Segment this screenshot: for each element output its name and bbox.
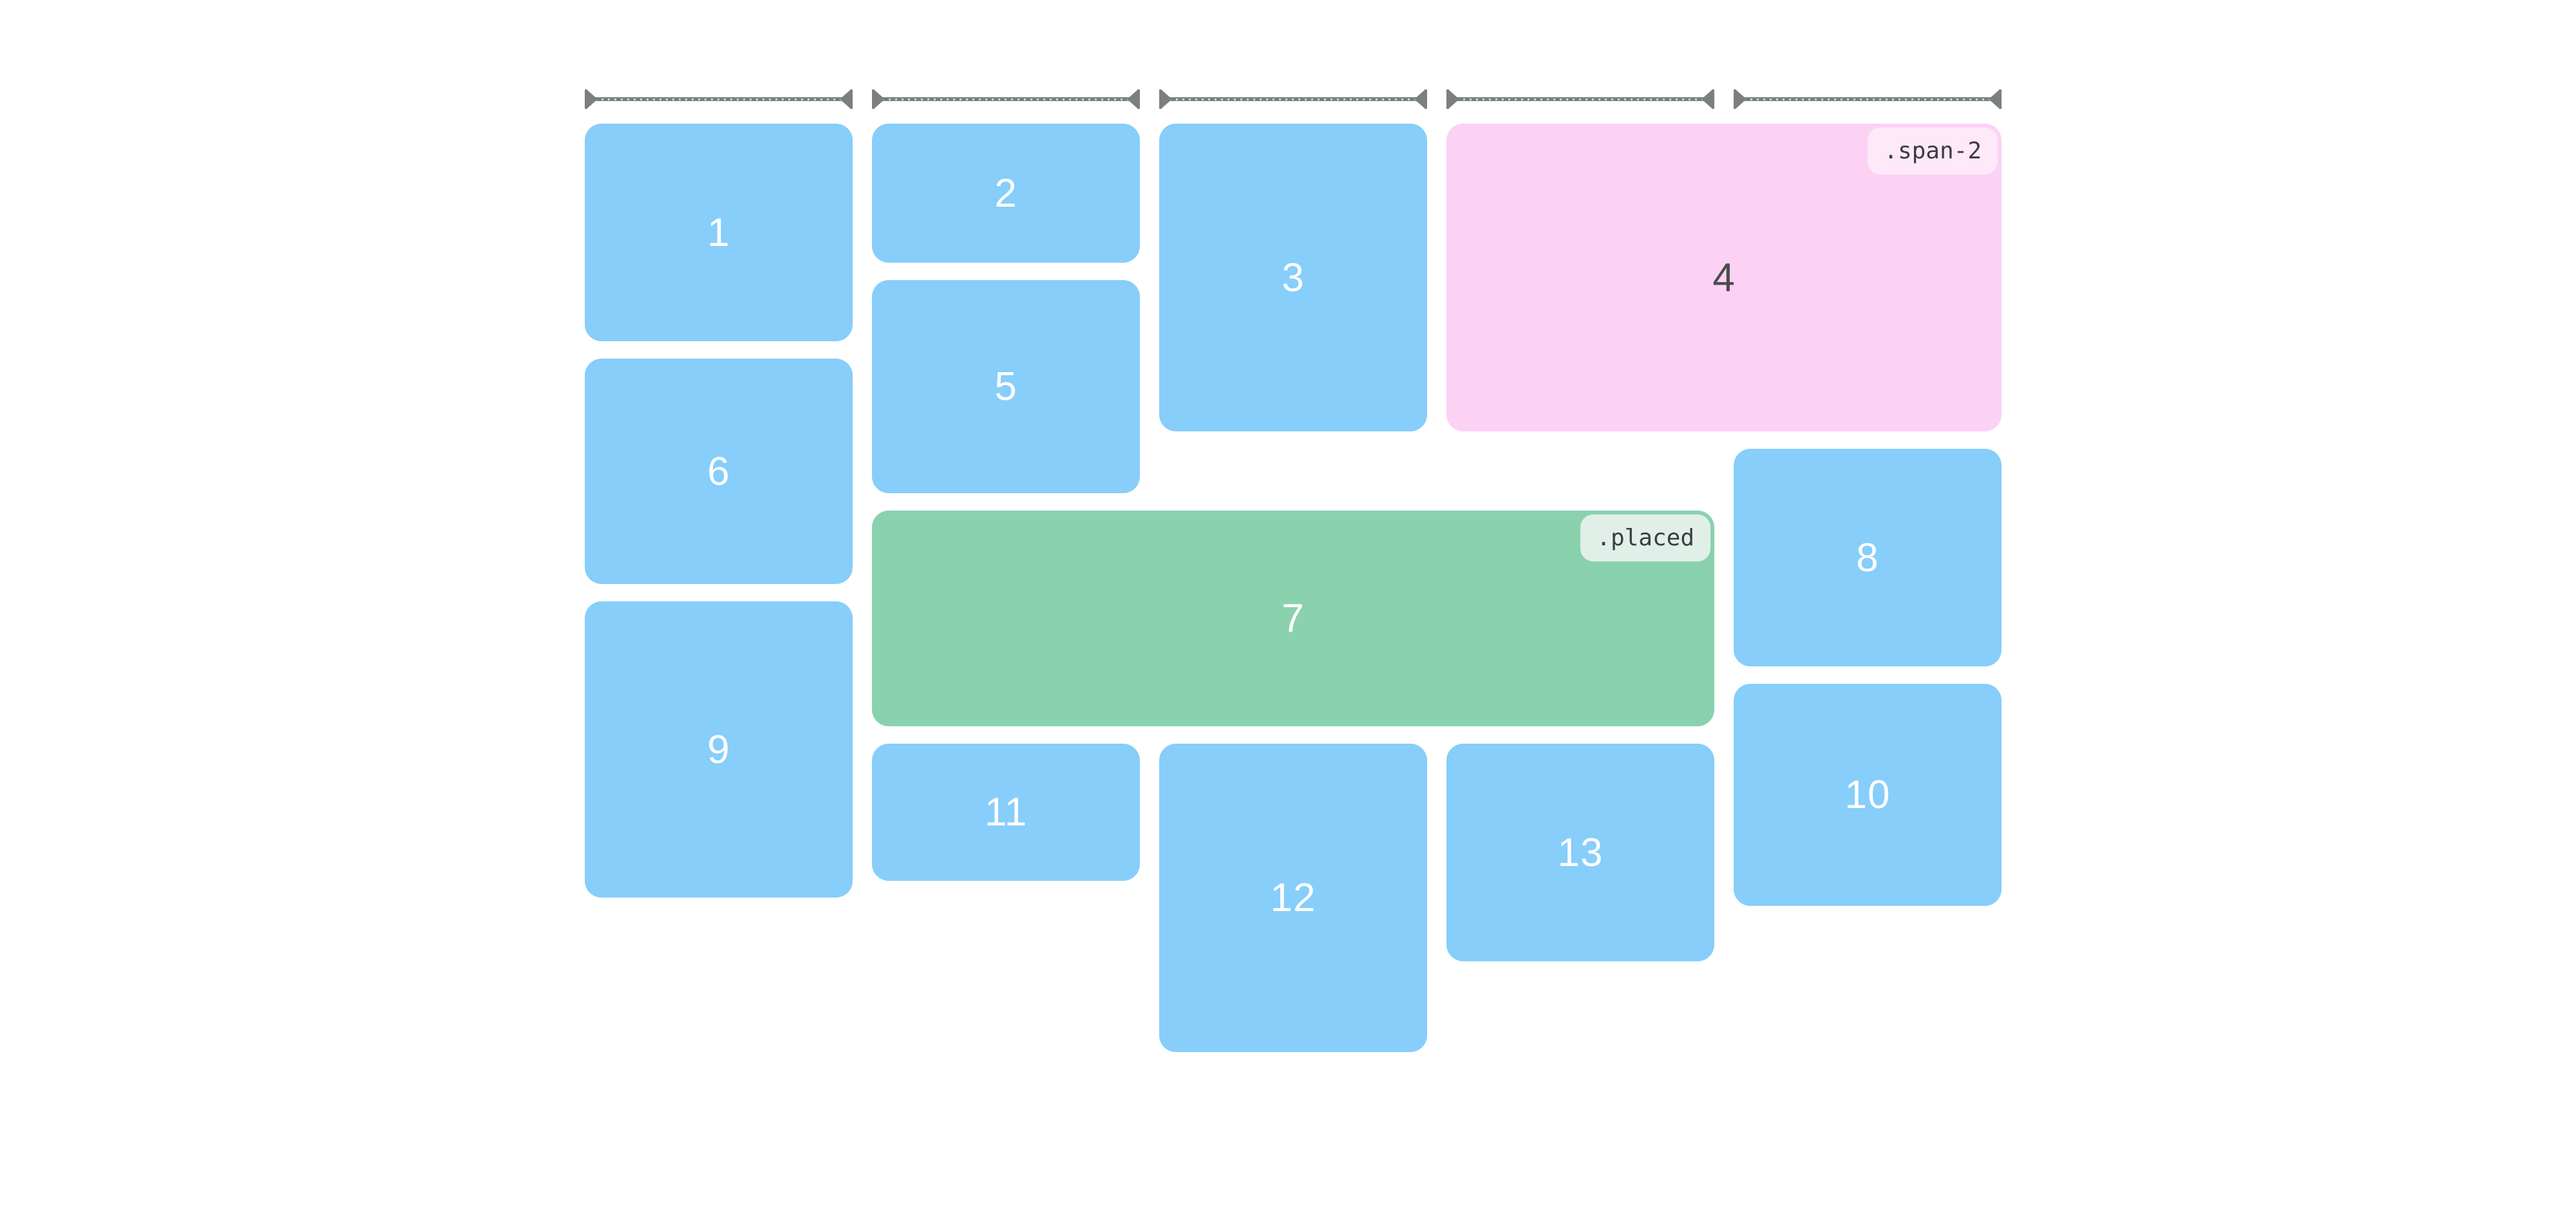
ruler-dotted-centerline bbox=[876, 99, 1136, 100]
grid-item-7: 7.placed bbox=[872, 511, 1714, 726]
grid-item-11: 11 bbox=[872, 744, 1140, 881]
ruler-dotted-centerline bbox=[1738, 99, 1998, 100]
grid-item-13: 13 bbox=[1446, 744, 1714, 961]
column-ruler-segment bbox=[1159, 89, 1427, 109]
grid-item-12: 12 bbox=[1159, 744, 1427, 1052]
column-ruler-segment bbox=[1446, 89, 1714, 109]
ruler-arrow-right-icon bbox=[1161, 89, 1172, 109]
item-number: 10 bbox=[1845, 772, 1891, 818]
grid-item-1: 1 bbox=[585, 124, 853, 341]
ruler-dotted-centerline bbox=[589, 99, 849, 100]
item-number: 2 bbox=[994, 171, 1017, 216]
item-number: 4 bbox=[1712, 255, 1735, 301]
item-number: 8 bbox=[1856, 535, 1879, 581]
item-number: 6 bbox=[707, 449, 730, 494]
item-class-badge: .span-2 bbox=[1868, 127, 1998, 174]
grid-item-8: 8 bbox=[1734, 449, 2002, 666]
ruler-dotted-centerline bbox=[1163, 99, 1423, 100]
masonry-grid-demo-canvas: 1234.span-2567.placed8910111213 bbox=[0, 0, 2576, 1224]
ruler-arrow-right-icon bbox=[587, 89, 598, 109]
ruler-arrow-left-icon bbox=[1701, 89, 1712, 109]
ruler-arrow-left-icon bbox=[840, 89, 851, 109]
column-ruler-segment bbox=[585, 89, 853, 109]
grid-item-2: 2 bbox=[872, 124, 1140, 263]
ruler-arrow-right-icon bbox=[874, 89, 885, 109]
ruler-arrow-left-icon bbox=[1989, 89, 2000, 109]
item-number: 11 bbox=[985, 789, 1027, 835]
grid-item-6: 6 bbox=[585, 359, 853, 584]
ruler-arrow-left-icon bbox=[1127, 89, 1138, 109]
column-ruler-segment bbox=[872, 89, 1140, 109]
item-number: 5 bbox=[994, 364, 1017, 410]
ruler-arrow-right-icon bbox=[1736, 89, 1747, 109]
item-number: 13 bbox=[1558, 830, 1604, 876]
item-class-badge: .placed bbox=[1580, 514, 1710, 561]
item-number: 1 bbox=[707, 210, 730, 256]
column-ruler-segment bbox=[1734, 89, 2002, 109]
ruler-arrow-right-icon bbox=[1448, 89, 1459, 109]
item-number: 12 bbox=[1271, 875, 1316, 921]
item-number: 9 bbox=[707, 727, 730, 773]
ruler-dotted-centerline bbox=[1450, 99, 1710, 100]
grid-item-5: 5 bbox=[872, 280, 1140, 493]
grid-item-4: 4.span-2 bbox=[1446, 124, 2002, 431]
item-number: 3 bbox=[1282, 255, 1304, 301]
grid-item-10: 10 bbox=[1734, 684, 2002, 906]
grid-item-9: 9 bbox=[585, 601, 853, 898]
ruler-arrow-left-icon bbox=[1414, 89, 1425, 109]
item-number: 7 bbox=[1282, 596, 1304, 641]
grid-item-3: 3 bbox=[1159, 124, 1427, 431]
